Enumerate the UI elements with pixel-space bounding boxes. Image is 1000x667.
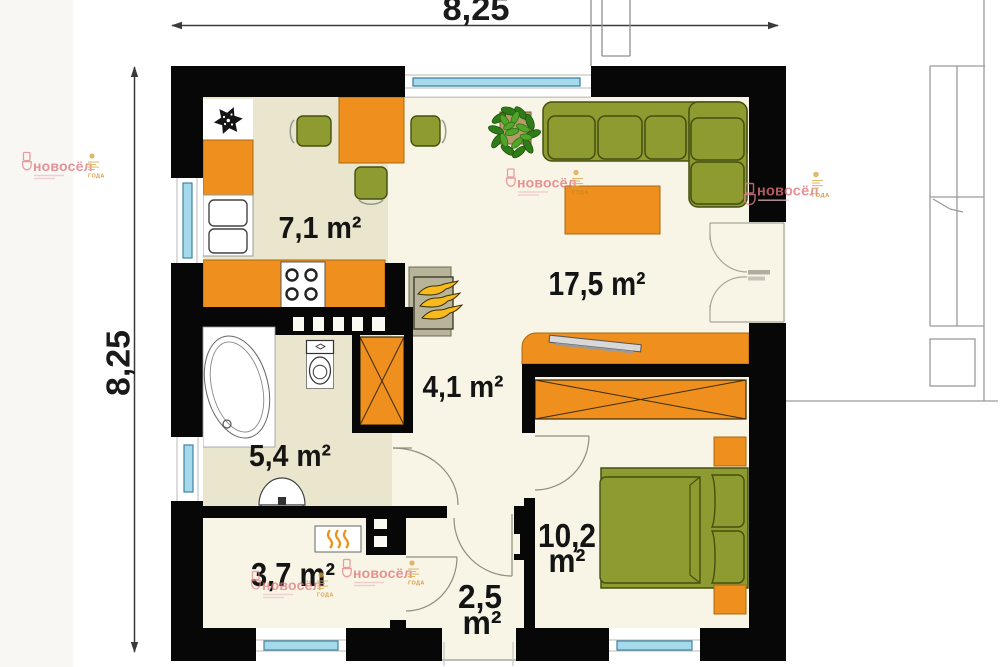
svg-text:5,4 m²: 5,4 m² [249, 438, 331, 473]
svg-text:4,1 m²: 4,1 m² [423, 369, 504, 404]
svg-text:7,1 m²: 7,1 m² [279, 210, 362, 245]
svg-text:8,25: 8,25 [100, 330, 137, 396]
svg-text:m²: m² [463, 604, 502, 641]
svg-text:новосёл: новосёл [757, 184, 819, 200]
svg-text:m²: m² [549, 542, 586, 579]
svg-text:ГОДА: ГОДА [812, 193, 830, 199]
svg-text:17,5 m²: 17,5 m² [549, 265, 646, 302]
svg-text:8,25: 8,25 [443, 0, 510, 27]
